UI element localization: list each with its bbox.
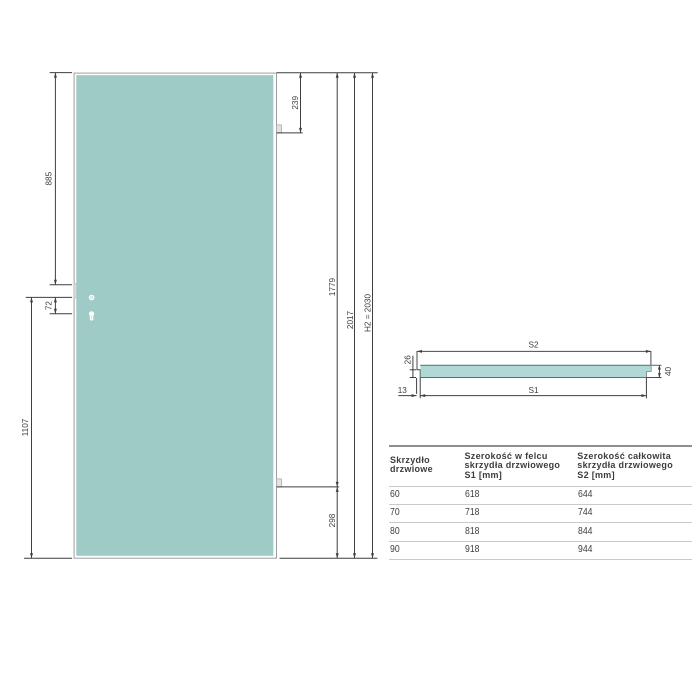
svg-text:1779: 1779 [328,277,337,296]
svg-text:S1: S1 [528,386,538,395]
svg-text:1107: 1107 [21,418,30,436]
svg-text:885: 885 [45,171,54,185]
svg-text:13: 13 [398,386,408,395]
svg-text:40: 40 [664,367,673,377]
svg-text:H2 = 2030: H2 = 2030 [364,294,373,332]
svg-text:239: 239 [291,96,300,110]
svg-text:2017: 2017 [346,310,355,329]
svg-text:26: 26 [403,355,412,365]
svg-text:298: 298 [328,513,337,527]
svg-text:S2: S2 [528,341,538,350]
svg-text:72: 72 [45,301,54,311]
